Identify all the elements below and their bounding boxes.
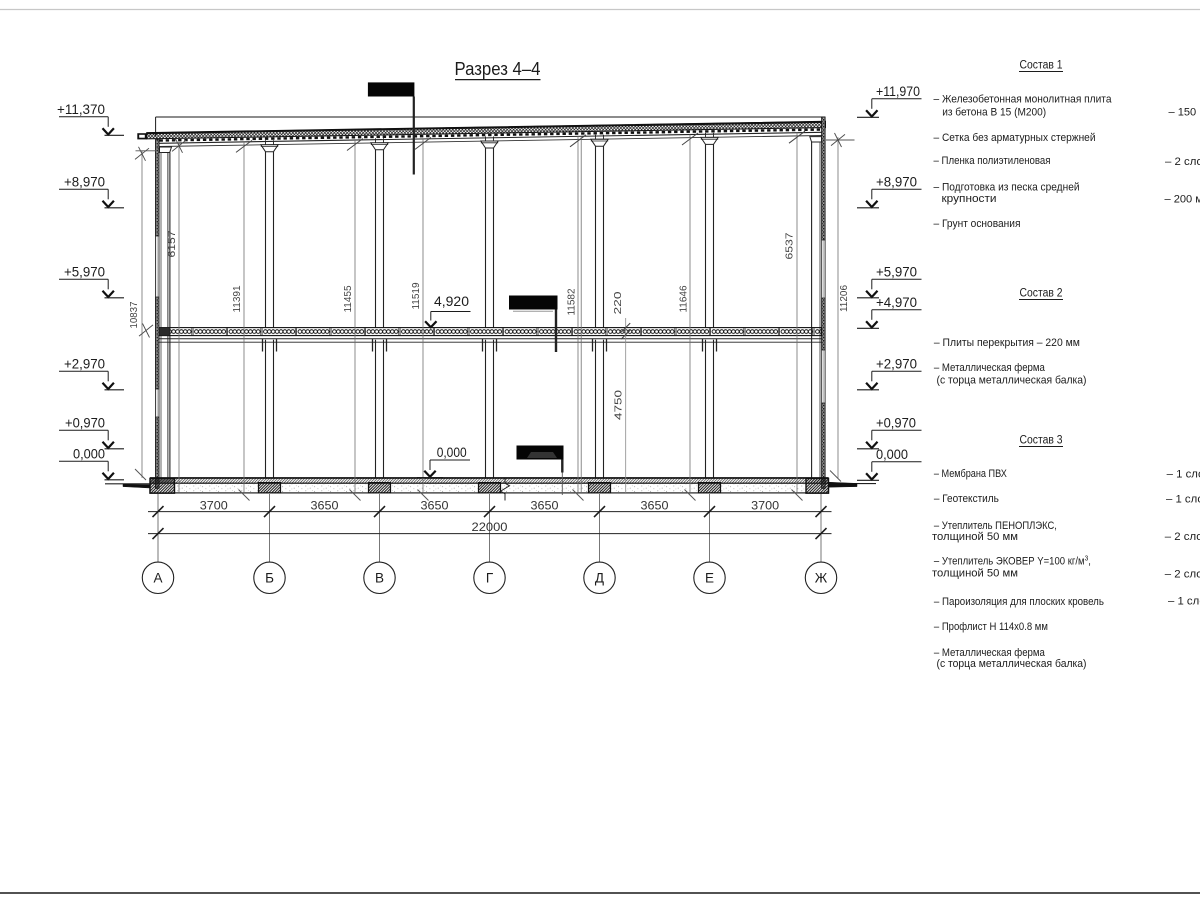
svg-text:– Металлическая ферма: – Металлическая ферма — [934, 647, 1045, 659]
svg-text:220: 220 — [612, 291, 624, 314]
svg-text:– Утеплитель ЭКОВЕР Y=100 кг/м: – Утеплитель ЭКОВЕР Y=100 кг/м3, — [934, 554, 1091, 568]
svg-text:+8,970: +8,970 — [64, 174, 105, 190]
svg-text:4750: 4750 — [613, 390, 625, 420]
svg-text:3650: 3650 — [311, 499, 339, 513]
svg-text:– Геотекстиль: – Геотекстиль — [934, 493, 999, 505]
svg-text:+0,970: +0,970 — [876, 415, 916, 431]
svg-text:– 2 слоя: – 2 слоя — [1165, 156, 1200, 168]
svg-text:– Пароизоляция для плоских кро: – Пароизоляция для плоских кровель — [934, 596, 1104, 608]
svg-text:Б: Б — [265, 571, 274, 586]
svg-text:4,920: 4,920 — [434, 293, 469, 309]
svg-text:3650: 3650 — [531, 499, 559, 513]
svg-text:– 1 слой: – 1 слой — [1168, 596, 1200, 608]
svg-text:11582: 11582 — [566, 288, 578, 315]
svg-text:3650: 3650 — [421, 499, 449, 513]
svg-text:10837: 10837 — [128, 301, 140, 328]
svg-text:– Железобетонная монолитная п: – Железобетонная монолитная плита — [934, 94, 1112, 106]
svg-text:Ж: Ж — [815, 571, 828, 586]
svg-text:3700: 3700 — [751, 499, 779, 513]
svg-text:+5,970: +5,970 — [876, 264, 917, 280]
svg-text:– Грунт основания: – Грунт основания — [934, 218, 1021, 230]
svg-text:Д: Д — [595, 571, 604, 586]
svg-text:11646: 11646 — [678, 285, 690, 312]
svg-text:из бетона В 15 (М200): из бетона В 15 (М200) — [942, 107, 1046, 119]
svg-text:(с торца металлическая балка): (с торца металлическая балка) — [937, 658, 1087, 670]
svg-text:11206: 11206 — [838, 285, 850, 312]
svg-text:Состав 2: Состав 2 — [1020, 288, 1063, 300]
svg-text:0,000: 0,000 — [876, 446, 908, 462]
svg-text:– Профлист Н 114х0.8 мм: – Профлист Н 114х0.8 мм — [934, 621, 1048, 633]
svg-text:– Сетка без арматурных стержне: – Сетка без арматурных стержней — [934, 132, 1096, 144]
svg-text:В: В — [375, 571, 384, 586]
svg-text:0,000: 0,000 — [73, 446, 105, 462]
svg-text:Г: Г — [486, 571, 494, 586]
svg-text:толщиной 50 мм: толщиной 50 мм — [932, 568, 1018, 580]
svg-text:+4,970: +4,970 — [876, 294, 917, 310]
svg-text:А: А — [153, 571, 162, 586]
svg-text:(с торца металлическая балка): (с торца металлическая балка) — [937, 375, 1087, 387]
svg-text:+8,970: +8,970 — [876, 174, 917, 190]
svg-text:0,000: 0,000 — [437, 444, 467, 460]
svg-text:Разрез 4–4: Разрез 4–4 — [455, 58, 541, 79]
svg-text:– 200 мм: – 200 мм — [1165, 194, 1200, 206]
svg-text:11519: 11519 — [410, 282, 422, 309]
svg-text:11391: 11391 — [231, 285, 243, 312]
svg-text:– Мембрана ПВХ: – Мембрана ПВХ — [934, 468, 1007, 480]
svg-text:+0,970: +0,970 — [65, 415, 105, 431]
svg-text:11455: 11455 — [342, 285, 354, 312]
svg-text:Е: Е — [705, 571, 714, 586]
svg-text:– Пленка полиэтиленовая: – Пленка полиэтиленовая — [934, 155, 1051, 167]
svg-text:– 150 мм: – 150 мм — [1169, 107, 1200, 119]
svg-text:– Подготовка из песка средней: – Подготовка из песка средней — [934, 181, 1080, 193]
svg-text:– 2 слоя: – 2 слоя — [1165, 531, 1200, 543]
svg-text:Состав 3: Состав 3 — [1020, 435, 1063, 447]
svg-text:крупности: крупности — [942, 193, 997, 205]
svg-text:3650: 3650 — [641, 499, 669, 513]
svg-text:+2,970: +2,970 — [876, 356, 917, 372]
svg-text:– Плиты перекрытия – 220 мм: – Плиты перекрытия – 220 мм — [934, 337, 1080, 349]
svg-text:– 1 слой: – 1 слой — [1166, 494, 1200, 506]
svg-text:6157: 6157 — [166, 230, 178, 257]
svg-text:– Металлическая ферма: – Металлическая ферма — [934, 362, 1045, 374]
svg-text:+11,370: +11,370 — [57, 101, 105, 117]
svg-text:6537: 6537 — [784, 232, 796, 259]
svg-text:3700: 3700 — [200, 499, 228, 513]
svg-text:+5,970: +5,970 — [64, 264, 105, 280]
svg-text:Состав 1: Состав 1 — [1020, 60, 1063, 72]
svg-text:– 2 слоя: – 2 слоя — [1165, 568, 1200, 580]
svg-text:+11,970: +11,970 — [876, 83, 920, 99]
svg-text:22000: 22000 — [472, 520, 508, 534]
svg-text:+2,970: +2,970 — [64, 356, 105, 372]
svg-text:– 1 слой: – 1 слой — [1167, 468, 1200, 480]
svg-text:толщиной 50 мм: толщиной 50 мм — [932, 531, 1018, 543]
